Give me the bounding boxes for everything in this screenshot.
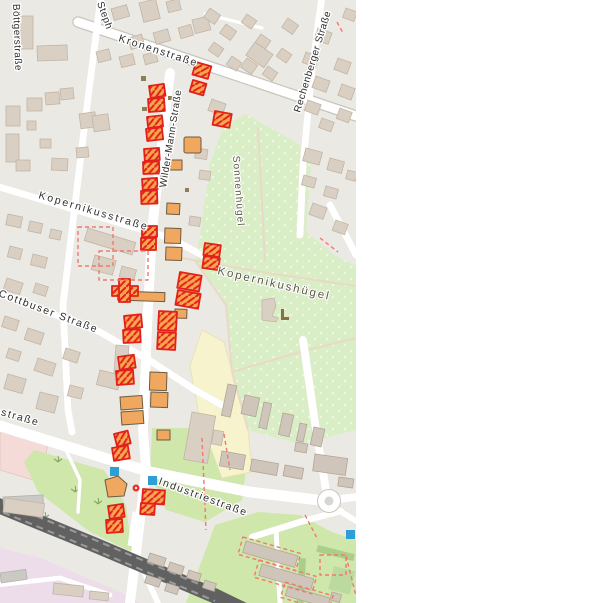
selected-building-highlight xyxy=(141,190,157,204)
selected-building-highlight xyxy=(141,238,156,250)
selected-building-highlight xyxy=(148,98,165,112)
building xyxy=(92,114,110,132)
selected-building-highlight xyxy=(177,272,201,292)
railway xyxy=(132,512,137,546)
orange-building xyxy=(157,430,170,440)
map-viewport[interactable]: Böttgerstraße Steph Kronenstraße Rechenb… xyxy=(0,0,356,603)
building xyxy=(16,160,30,171)
building xyxy=(37,45,68,61)
mini-roundabout-center xyxy=(135,487,137,489)
selected-building-highlight xyxy=(213,111,232,128)
selected-building-highlight xyxy=(114,431,131,447)
selected-building-highlight xyxy=(175,290,200,309)
building xyxy=(27,121,36,130)
selected-building-highlight xyxy=(118,355,136,370)
building xyxy=(76,147,89,158)
screenshot-root: Böttgerstraße Steph Kronenstraße Rechenb… xyxy=(0,0,600,603)
building xyxy=(199,170,211,180)
selected-building-highlight xyxy=(106,519,123,533)
building xyxy=(27,98,42,111)
roundabout-island xyxy=(325,497,334,506)
building xyxy=(338,477,354,488)
building xyxy=(45,92,60,105)
building xyxy=(40,139,51,148)
building xyxy=(28,221,43,233)
selected-building-highlight xyxy=(124,314,142,329)
selected-building-highlight xyxy=(123,329,141,343)
orange-building xyxy=(166,203,180,215)
building xyxy=(294,442,307,453)
selected-building-highlight xyxy=(116,370,134,385)
selected-building-highlight xyxy=(144,148,160,161)
building xyxy=(51,158,68,171)
selected-building-highlight xyxy=(149,84,166,98)
map-canvas[interactable]: Böttgerstraße Steph Kronenstraße Rechenb… xyxy=(0,0,356,603)
selected-building-highlight xyxy=(203,243,221,257)
blue-square-marker xyxy=(346,530,355,539)
orange-building xyxy=(184,137,201,153)
selected-building-highlight xyxy=(142,178,158,190)
building xyxy=(6,134,19,162)
building xyxy=(212,430,224,446)
orange-building xyxy=(121,410,144,425)
orange-building xyxy=(149,372,167,391)
selected-building-highlight xyxy=(108,504,125,519)
orange-building xyxy=(120,395,143,410)
blue-square-marker xyxy=(148,476,157,485)
orange-building xyxy=(164,228,181,244)
street-label-boettgerstrasse: Böttgerstraße xyxy=(10,4,23,71)
building xyxy=(189,216,201,226)
orange-building xyxy=(150,392,168,408)
selected-building-highlight xyxy=(140,503,155,515)
selected-building-highlight xyxy=(202,256,220,270)
roundabout xyxy=(318,490,341,513)
selected-building-highlight xyxy=(119,279,130,302)
building xyxy=(6,106,20,126)
selected-building-highlight xyxy=(190,80,207,95)
selected-building-highlight xyxy=(146,127,163,141)
building xyxy=(89,591,109,601)
selected-building-highlight xyxy=(142,489,165,505)
selected-building-highlight xyxy=(112,445,130,460)
building xyxy=(185,188,189,192)
selected-building-highlight xyxy=(157,332,176,350)
building xyxy=(60,88,74,100)
building xyxy=(141,76,146,81)
selected-building-highlight xyxy=(143,161,159,174)
building xyxy=(49,229,62,240)
blue-square-marker xyxy=(110,467,119,476)
selected-building-highlight xyxy=(158,311,177,331)
building xyxy=(142,107,147,111)
orange-building xyxy=(166,247,182,261)
selected-building-highlight xyxy=(147,115,163,128)
empty-right-area xyxy=(356,0,600,603)
